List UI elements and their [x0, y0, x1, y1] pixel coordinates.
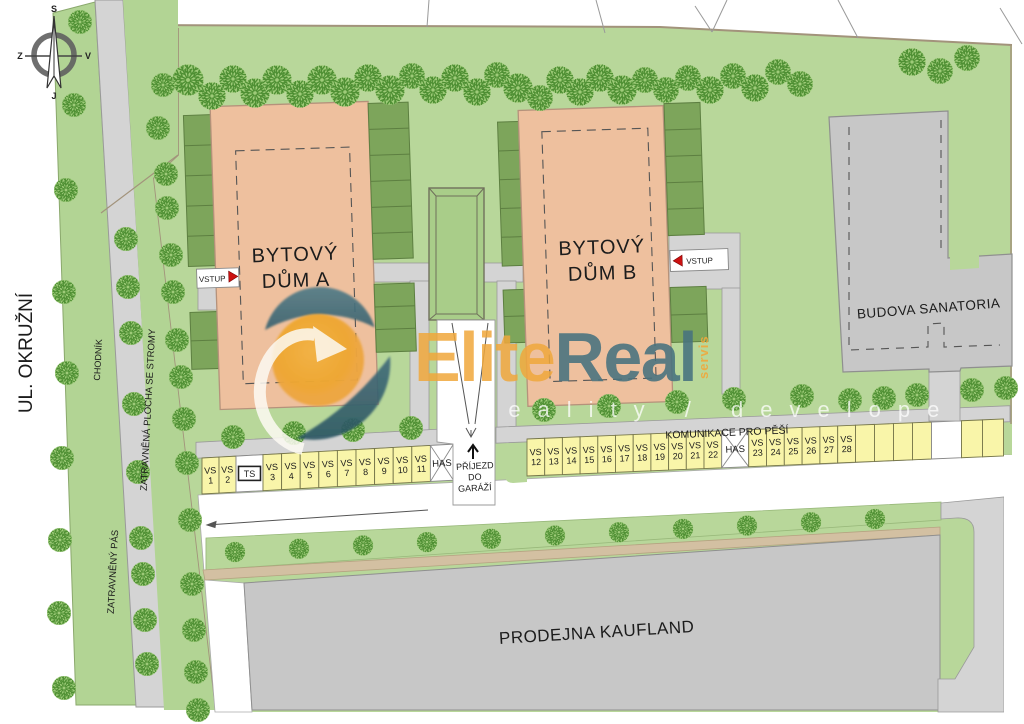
svg-text:VS: VS	[565, 445, 577, 455]
svg-text:24: 24	[770, 447, 780, 457]
svg-text:TS: TS	[244, 469, 256, 479]
svg-text:VS: VS	[671, 441, 683, 451]
svg-text:VS: VS	[322, 459, 335, 470]
svg-text:16: 16	[602, 454, 612, 464]
svg-text:VS: VS	[204, 465, 217, 476]
svg-text:UL. OKRUŽNÍ: UL. OKRUŽNÍ	[15, 292, 37, 413]
svg-text:HAS: HAS	[725, 444, 745, 456]
svg-text:27: 27	[824, 445, 834, 455]
svg-text:20: 20	[672, 451, 682, 461]
svg-text:VS: VS	[266, 462, 279, 473]
svg-text:8: 8	[363, 467, 369, 477]
svg-text:VS: VS	[840, 434, 852, 444]
svg-text:GARÁŽÍ: GARÁŽÍ	[458, 482, 492, 494]
svg-text:servis: servis	[696, 335, 711, 379]
svg-text:1: 1	[208, 475, 214, 485]
svg-text:VS: VS	[529, 447, 541, 457]
svg-text:J: J	[51, 91, 56, 101]
svg-text:23: 23	[753, 448, 763, 458]
svg-text:13: 13	[549, 456, 559, 466]
svg-text:VS: VS	[415, 454, 428, 465]
svg-text:7: 7	[344, 468, 350, 478]
svg-text:26: 26	[806, 445, 816, 455]
svg-text:28: 28	[842, 444, 852, 454]
svg-text:VS: VS	[600, 444, 612, 454]
svg-text:HAS: HAS	[432, 458, 452, 470]
svg-text:14: 14	[566, 455, 576, 465]
svg-text:15: 15	[584, 455, 594, 465]
svg-text:VS: VS	[653, 442, 665, 452]
svg-text:DŮM B: DŮM B	[567, 260, 637, 286]
svg-text:VS: VS	[769, 437, 781, 447]
svg-text:19: 19	[655, 452, 665, 462]
svg-text:EliteReal: EliteReal	[414, 318, 696, 396]
svg-text:VS: VS	[284, 461, 297, 472]
svg-text:VS: VS	[340, 458, 353, 469]
svg-text:2: 2	[225, 474, 231, 484]
svg-text:VS: VS	[583, 445, 595, 455]
svg-text:VS: VS	[547, 446, 559, 456]
svg-text:VS: VS	[377, 456, 390, 467]
svg-text:VS: VS	[636, 442, 648, 452]
svg-text:11: 11	[416, 464, 426, 474]
svg-text:5: 5	[307, 470, 313, 480]
svg-text:VS: VS	[706, 439, 718, 449]
svg-text:VS: VS	[221, 464, 234, 475]
svg-text:BYTOVÝ: BYTOVÝ	[251, 242, 338, 268]
svg-text:3: 3	[270, 472, 276, 482]
svg-text:17: 17	[619, 453, 629, 463]
svg-text:VSTUP: VSTUP	[686, 256, 713, 266]
svg-text:VS: VS	[751, 438, 763, 448]
svg-text:VS: VS	[805, 435, 817, 445]
svg-text:VS: VS	[822, 435, 834, 445]
svg-text:S: S	[51, 4, 57, 14]
svg-text:Z: Z	[17, 51, 23, 61]
svg-text:V: V	[85, 51, 91, 61]
svg-text:12: 12	[531, 457, 541, 467]
svg-text:10: 10	[397, 465, 408, 476]
svg-text:VS: VS	[689, 440, 701, 450]
svg-text:22: 22	[708, 449, 718, 459]
svg-text:PŘÍJEZD: PŘÍJEZD	[456, 460, 494, 472]
svg-text:VS: VS	[396, 455, 409, 466]
svg-text:18: 18	[637, 452, 647, 462]
svg-text:9: 9	[381, 466, 387, 476]
svg-text:VS: VS	[359, 457, 372, 468]
svg-text:VSTUP: VSTUP	[199, 274, 226, 284]
svg-text:6: 6	[326, 469, 332, 479]
svg-text:4: 4	[288, 471, 294, 481]
svg-text:VS: VS	[303, 460, 316, 471]
svg-text:DO: DO	[468, 472, 482, 483]
svg-text:25: 25	[788, 446, 798, 456]
svg-text:BYTOVÝ: BYTOVÝ	[558, 234, 645, 260]
svg-text:21: 21	[690, 450, 700, 460]
svg-text:reality / develope: reality / develope	[484, 397, 956, 422]
svg-text:VS: VS	[787, 436, 799, 446]
svg-text:VS: VS	[618, 443, 630, 453]
